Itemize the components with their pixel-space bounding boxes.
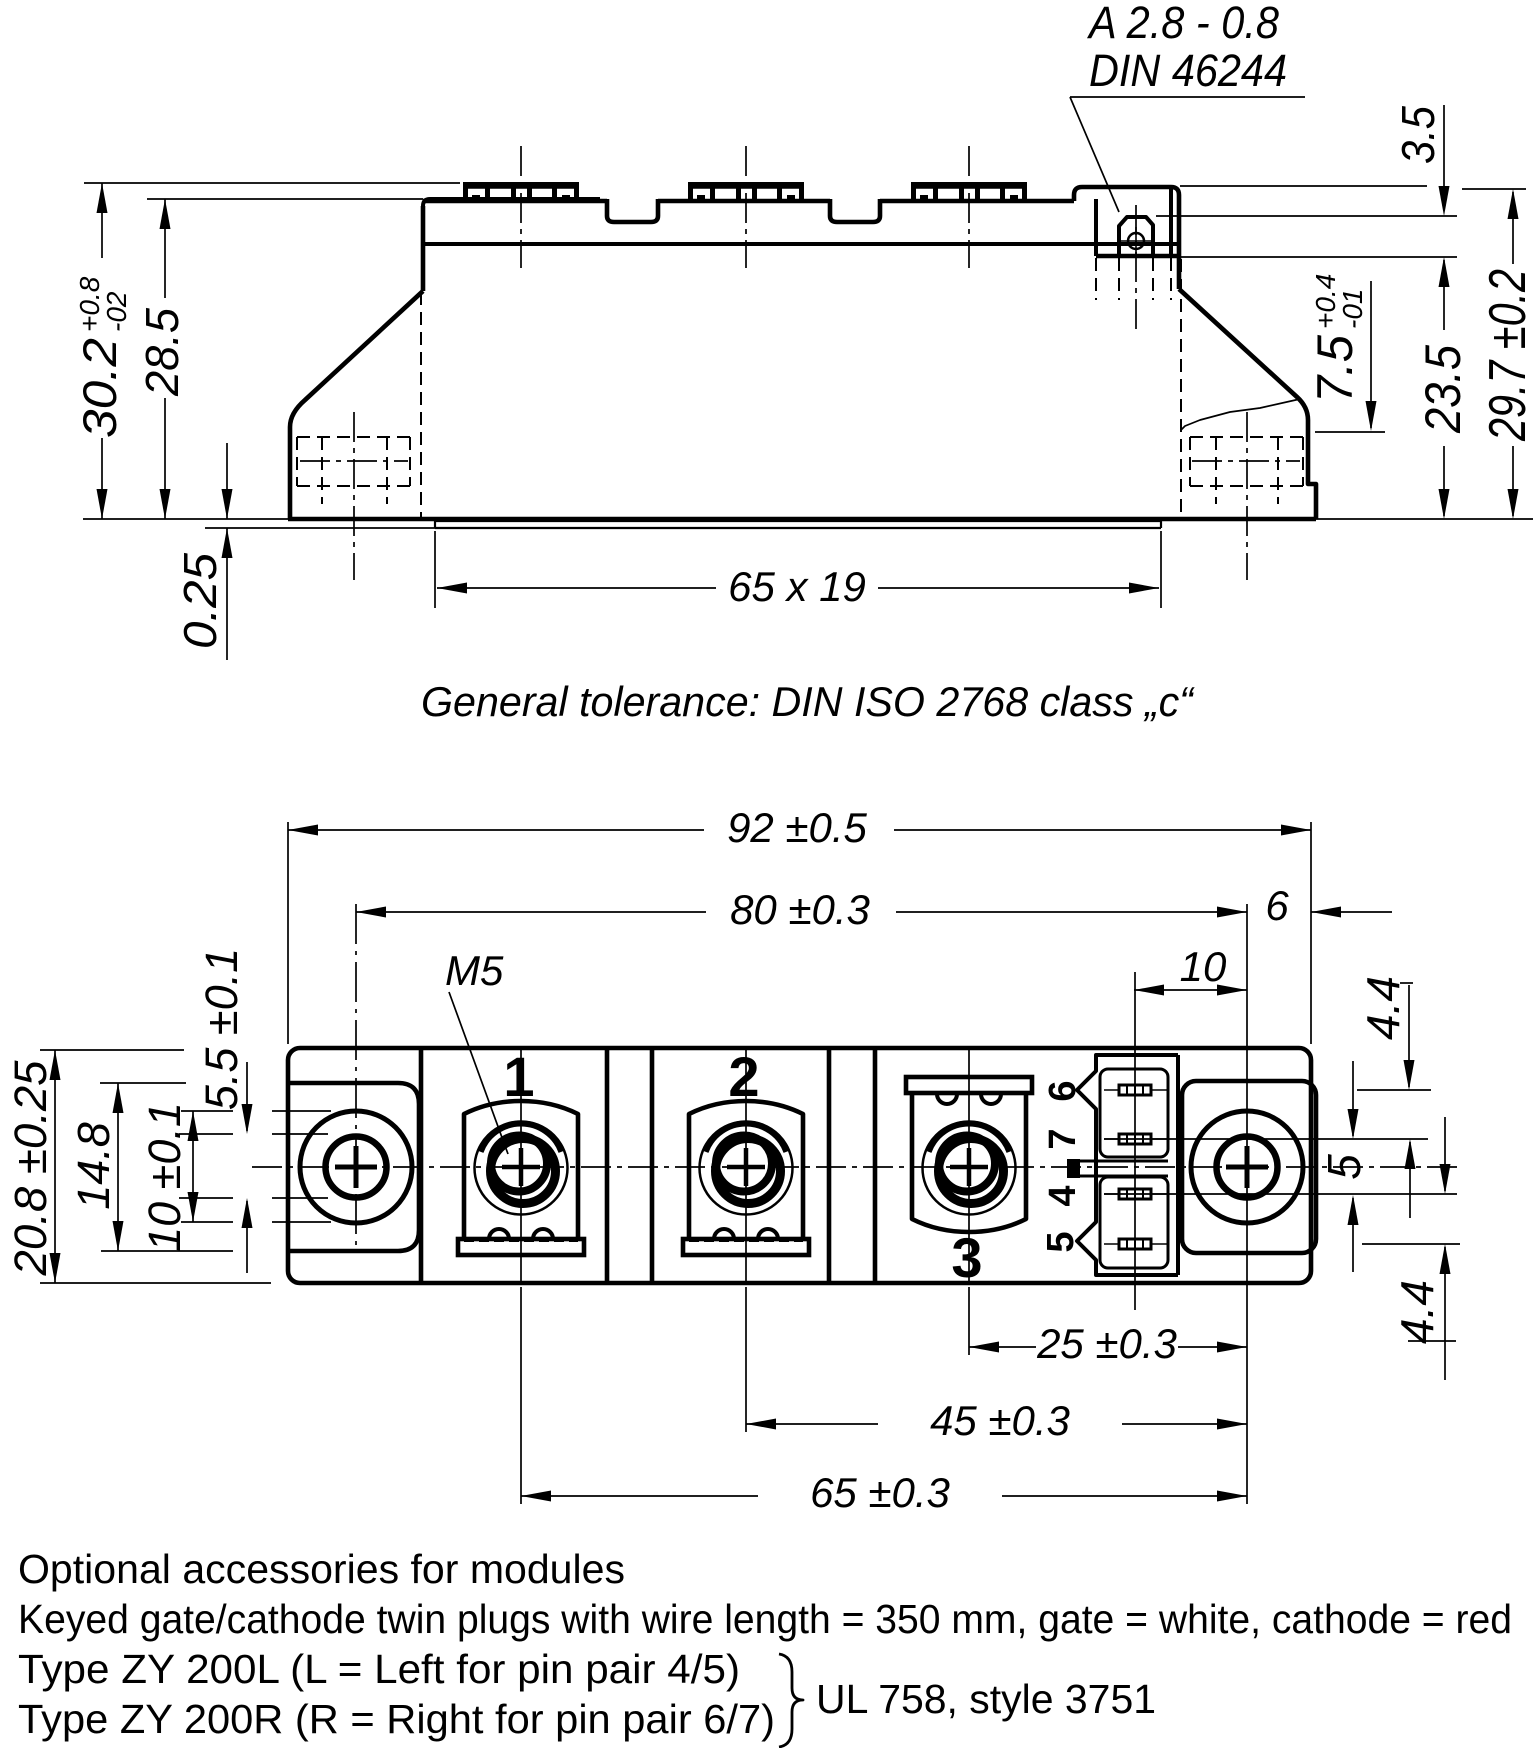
svg-text:7.5: 7.5 [1307, 335, 1363, 403]
svg-text:Type ZY 200L (L = Left for pi: Type ZY 200L (L = Left for pin pair 4/5) [18, 1646, 740, 1692]
svg-text:28.5: 28.5 [136, 308, 188, 397]
svg-text:7: 7 [1042, 1128, 1084, 1149]
svg-text:29.7 ±0.2: 29.7 ±0.2 [1479, 269, 1537, 442]
svg-text:0.25: 0.25 [174, 553, 226, 649]
svg-text:6: 6 [1265, 882, 1289, 929]
svg-text:DIN 46244: DIN 46244 [1089, 45, 1287, 96]
svg-text:45 ±0.3: 45 ±0.3 [930, 1397, 1070, 1444]
svg-text:80 ±0.3: 80 ±0.3 [730, 886, 870, 933]
svg-text:92 ±0.5: 92 ±0.5 [727, 804, 867, 851]
svg-text:Optional accessories for modul: Optional accessories for modules [18, 1546, 625, 1592]
svg-text:1: 1 [503, 1045, 534, 1108]
svg-text:14.8: 14.8 [68, 1122, 119, 1210]
svg-text:65 x 19: 65 x 19 [728, 563, 866, 610]
svg-text:General tolerance: DIN ISO 276: General tolerance: DIN ISO 2768 class „c… [421, 678, 1195, 725]
svg-text:5.5 ±0.1: 5.5 ±0.1 [196, 948, 247, 1110]
svg-text:M5: M5 [445, 947, 504, 994]
svg-text:5: 5 [1318, 1154, 1370, 1180]
svg-text:-02: -02 [101, 291, 132, 332]
svg-text:5: 5 [1040, 1231, 1082, 1252]
svg-text:-01: -01 [1337, 289, 1368, 329]
svg-text:Keyed gate/cathode twin plugs: Keyed gate/cathode twin plugs with wire … [18, 1596, 1512, 1642]
svg-text:3.5: 3.5 [1392, 106, 1444, 164]
svg-text:20.8 ±0.25: 20.8 ±0.25 [5, 1060, 56, 1277]
svg-text:3: 3 [951, 1226, 982, 1289]
svg-text:4.4: 4.4 [1391, 1280, 1443, 1344]
svg-text:A 2.8 - 0.8: A 2.8 - 0.8 [1086, 0, 1279, 48]
svg-text:UL 758, style 3751: UL 758, style 3751 [816, 1676, 1156, 1722]
svg-text:25 ±0.3: 25 ±0.3 [1036, 1320, 1177, 1367]
svg-text:65 ±0.3: 65 ±0.3 [810, 1469, 950, 1516]
svg-text:4: 4 [1042, 1185, 1084, 1206]
svg-text:6: 6 [1042, 1080, 1084, 1101]
svg-text:Type ZY 200R (R = Right for pi: Type ZY 200R (R = Right for pin pair 6/7… [18, 1696, 775, 1742]
svg-text:2: 2 [728, 1045, 759, 1108]
svg-text:4.4: 4.4 [1357, 976, 1409, 1040]
svg-text:10 ±0.1: 10 ±0.1 [139, 1102, 190, 1252]
svg-text:23.5: 23.5 [1415, 345, 1471, 434]
svg-text:10: 10 [1180, 943, 1227, 990]
svg-text:30.2: 30.2 [73, 338, 126, 438]
